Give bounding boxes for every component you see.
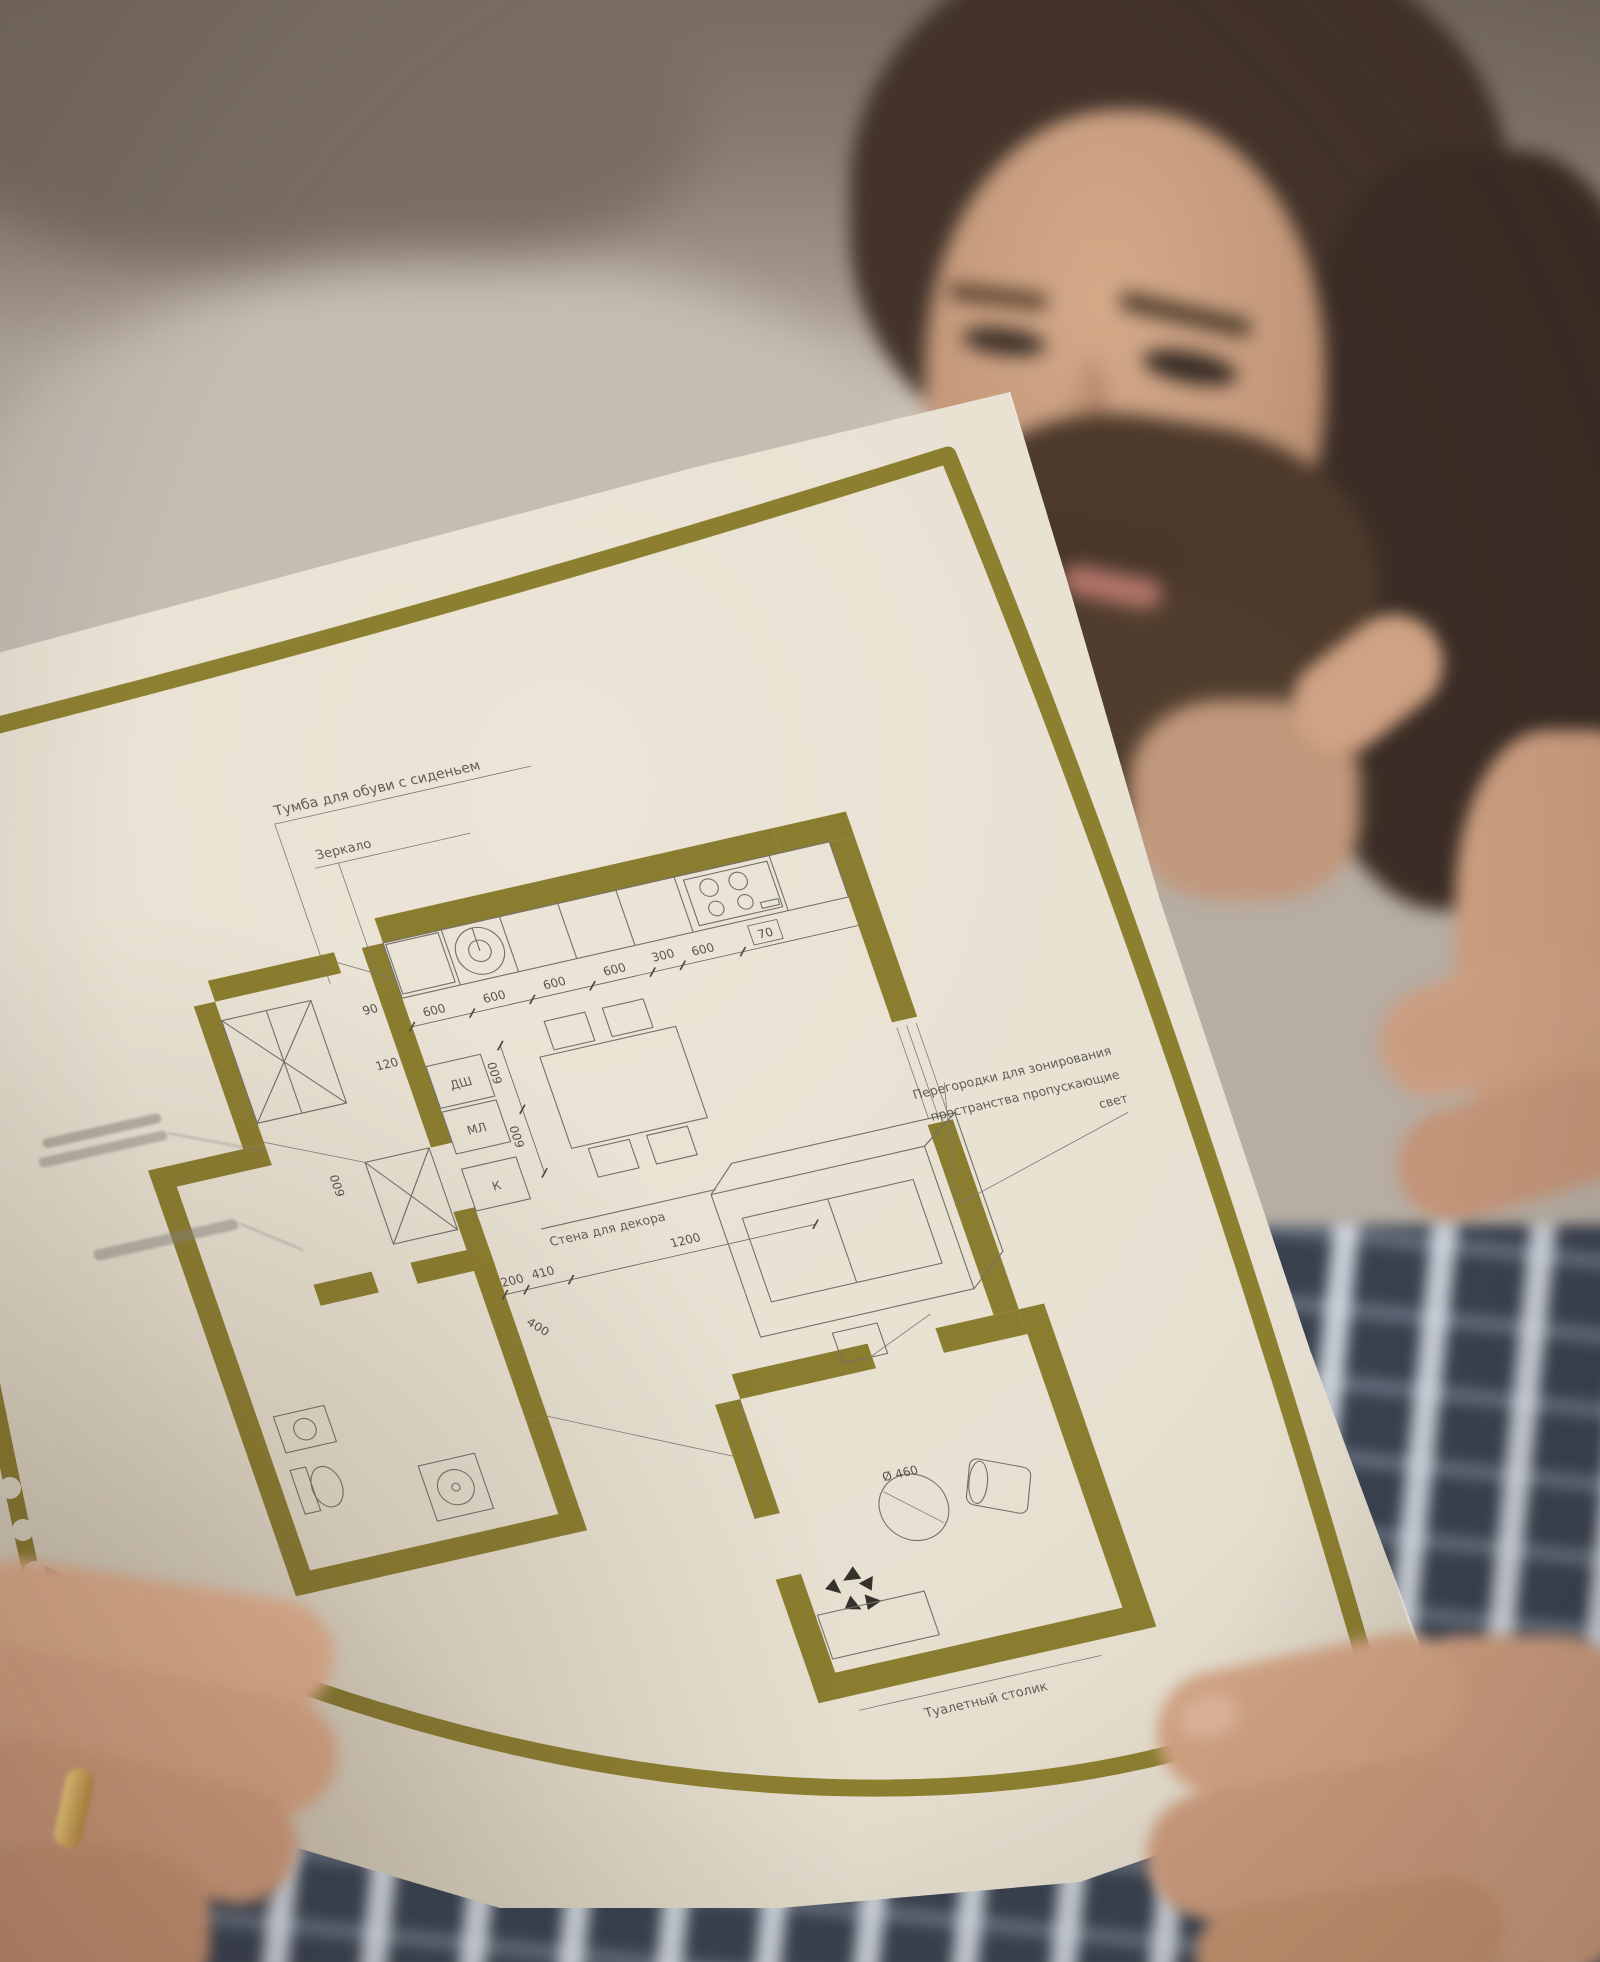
right-hand-lower [0,0,1600,1962]
photo-scene: 600 600 600 600 300 600 70 120 90 [0,0,1600,1962]
